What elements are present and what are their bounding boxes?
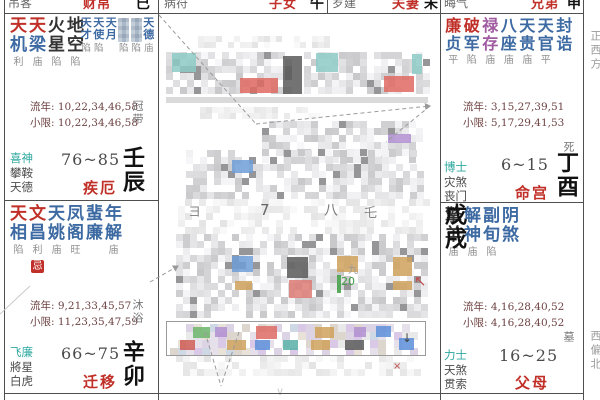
palace-name-qianyi: 迁移 — [83, 371, 117, 392]
hua-ji-badge: 忌 — [31, 260, 44, 273]
branch-wei: 未 — [424, 0, 438, 13]
star-column: 天相陷 — [9, 205, 28, 273]
star-column: 禄存庙 — [481, 17, 500, 66]
top-cell-zinv: 病符 子女 午 — [159, 0, 326, 13]
branch-shen: 申 — [567, 0, 581, 13]
star-column: 天梁庙 — [28, 17, 47, 68]
blur-fragment: ヨ — [188, 206, 201, 219]
major-stars: 天机利天梁庙火星陷地空陷 — [9, 17, 85, 68]
palace-ming: 廉贞平破军陷禄存庙八座庙天贵庙天官平封诰 流年: 3,15,27,39,51 小… — [441, 14, 582, 201]
palace-name-fumu: 父母 — [515, 372, 549, 393]
palace-name-zinv: 子女 — [269, 0, 297, 12]
branch-si: 巳 — [136, 0, 150, 13]
major-stars: 廉贞平破军陷禄存庙八座庙天贵庙天官平封诰 — [444, 17, 574, 66]
star-column: 文昌利忌 — [28, 205, 47, 273]
star-column: 天贵庙 — [518, 17, 537, 66]
stem-branch-wuxu: 戊戌 — [441, 203, 467, 251]
top-cell-caibo: 吊客 财帛 巳 — [5, 0, 157, 13]
star-column: 陷 — [130, 17, 143, 54]
star-column: 天才陷 — [80, 17, 93, 54]
decade-age-range: 76~85 — [61, 150, 120, 169]
top-cell-xiongdi: 晦气 兄弟 申 — [441, 0, 582, 13]
star-column: 蜚廉 — [85, 205, 104, 273]
stem-branch-xinmao: 辛卯 — [119, 340, 145, 388]
star-column: 天月 — [105, 17, 118, 54]
direction-label-west: 正西方 — [587, 30, 600, 72]
changsheng-stage: 沐浴 — [129, 299, 145, 325]
year-god-label: 晦气 — [444, 0, 468, 11]
palace-name-caibo: 财帛 — [83, 0, 111, 12]
blurred-star — [118, 18, 129, 42]
stem-branch-renchen: 壬辰 — [119, 146, 145, 194]
blur-fragment: ∨ — [276, 386, 284, 397]
palace-qianyi: 天相陷文昌利忌天姚庙凤阁旺蜚廉 年解庙 流年: 9,21,33,45,57 小限… — [5, 201, 157, 392]
year-god-label: 病符 — [164, 0, 188, 11]
palace-name-jie: 疾厄 — [83, 177, 117, 198]
top-cell-fuqi: 岁建 夫妻 未 — [328, 0, 439, 13]
palace-fumu: 擎羊庙解神庙副旬陷阴煞 流年: 4,16,28,40,52 小限: 4,16,2… — [441, 203, 582, 392]
blurred-star — [131, 18, 142, 42]
star-column: 天官平 — [537, 17, 556, 66]
star-column: 年解庙 — [104, 205, 123, 273]
changsheng-stage: 墓 — [560, 331, 576, 344]
star-column: 天使陷 — [93, 17, 106, 54]
liunian-ages: 流年: 4,16,28,40,52 — [463, 299, 564, 314]
stem-branch-dingyou: 丁酉 — [553, 151, 579, 199]
blur-fragment: ↓ — [402, 332, 412, 344]
year-gods: 博士 灾煞 丧门 — [444, 160, 467, 204]
star-column: 火星陷 — [47, 17, 66, 68]
star-column: 天机利 — [9, 17, 28, 68]
star-column: 封诰 — [555, 17, 574, 66]
palace-jie: 天机利天梁庙火星陷地空陷 天才陷天使陷天月 陷陷天德庙 流年: 10,22,34… — [5, 14, 157, 199]
blur-fragment: 7 — [260, 203, 270, 218]
direction-label-wnw: 西偏北 — [587, 330, 600, 372]
star-column: 凤阁旺 — [66, 205, 85, 273]
xiaoxian-ages: 小限: 4,16,28,40,52 — [463, 315, 564, 330]
year-god-label: 吊客 — [8, 0, 32, 11]
branch-wu: 午 — [310, 0, 324, 13]
blur-fragment: 乇 — [364, 207, 377, 220]
palace-name-ming: 命宫 — [515, 182, 549, 203]
year-god-label: 岁建 — [332, 0, 356, 11]
blur-fragment: ↖ — [414, 274, 427, 289]
changsheng-stage: 冠带 — [129, 100, 145, 126]
blur-fragment: 八 — [324, 204, 338, 218]
xiaoxian-ages: 小限: 11,23,35,47,59 — [30, 314, 138, 329]
star-column: 八座庙 — [500, 17, 519, 66]
decade-age-range: 16~25 — [499, 346, 558, 365]
star-column: 天姚庙 — [47, 205, 66, 273]
star-column: 阴煞 — [501, 207, 520, 258]
year-gods: 喜神 攀鞍 天德 — [10, 151, 33, 195]
star-column: 副旬陷 — [482, 207, 501, 258]
blur-fragment: × — [393, 362, 401, 372]
star-column: 破军陷 — [463, 17, 482, 66]
liunian-ages: 流年: 3,15,27,39,51 — [463, 99, 564, 114]
blur-fragment: 20 — [341, 276, 355, 287]
xiaoxian-ages: 小限: 10,22,34,46,58 — [30, 115, 138, 130]
year-gods: 飞廉 將星 白虎 — [10, 345, 33, 389]
year-gods: 力士 天煞 贯索 — [444, 348, 467, 392]
liunian-ages: 流年: 10,22,34,46,58 — [30, 99, 138, 114]
star-column: 陷 — [118, 17, 131, 54]
star-column: 天德庙 — [143, 17, 156, 54]
major-stars: 天相陷文昌利忌天姚庙凤阁旺蜚廉 年解庙 — [9, 205, 123, 273]
palace-name-fuqi: 夫妻 — [392, 0, 420, 12]
liunian-ages: 流年: 9,21,33,45,57 — [30, 298, 131, 313]
xiaoxian-ages: 小限: 5,17,29,41,53 — [463, 115, 564, 130]
palace-name-xiongdi: 兄弟 — [531, 0, 559, 12]
minor-stars: 天才陷天使陷天月 陷陷天德庙 — [80, 17, 155, 54]
decade-age-range: 6~15 — [501, 155, 549, 174]
star-column: 廉贞平 — [444, 17, 463, 66]
decade-age-range: 66~75 — [61, 344, 120, 363]
